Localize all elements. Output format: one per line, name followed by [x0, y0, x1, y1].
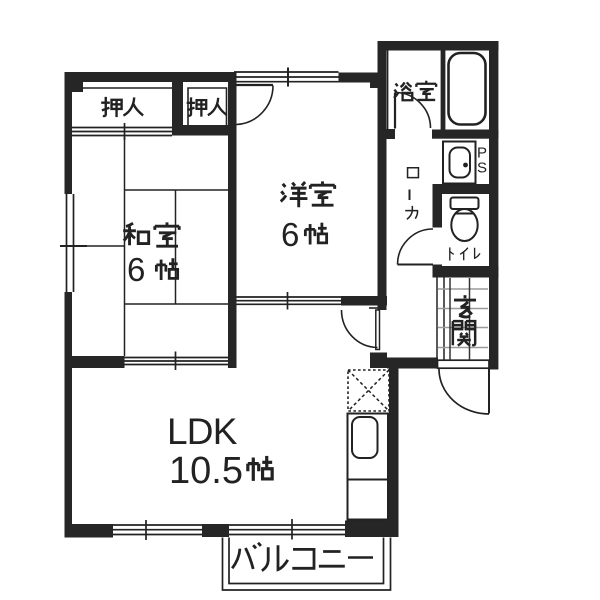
- svg-text:S: S: [477, 160, 487, 177]
- svg-text:LDK: LDK: [167, 411, 238, 452]
- svg-text:6: 6: [127, 251, 145, 288]
- svg-text:6: 6: [281, 216, 299, 253]
- svg-text:10.5: 10.5: [169, 450, 243, 492]
